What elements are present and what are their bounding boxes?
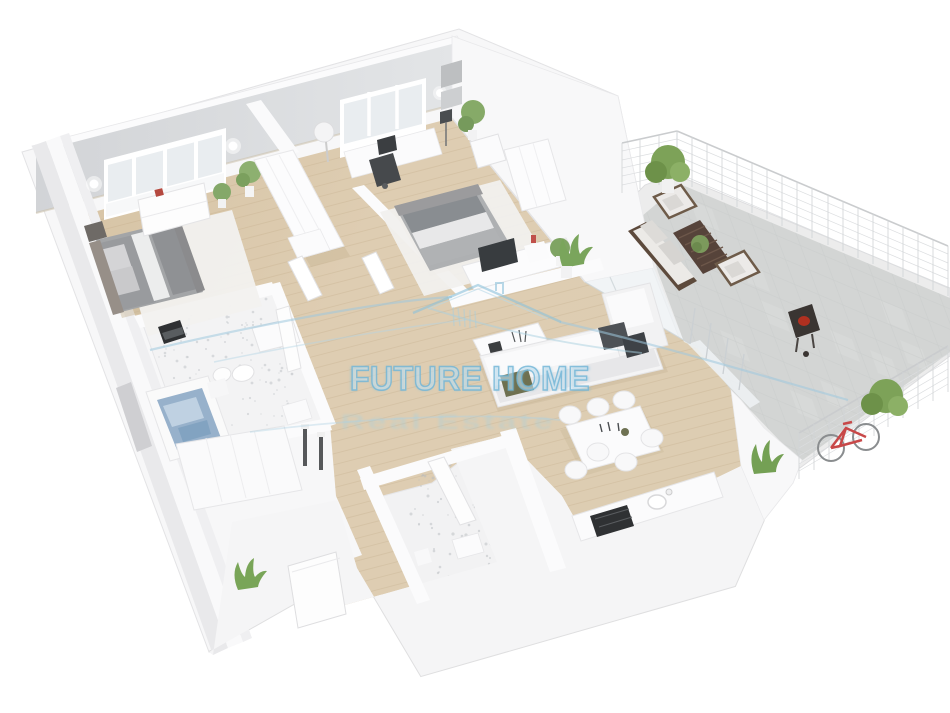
svg-text:Real Estate: Real Estate (341, 411, 556, 434)
svg-text:FUTURE HOME: FUTURE HOME (350, 360, 590, 398)
